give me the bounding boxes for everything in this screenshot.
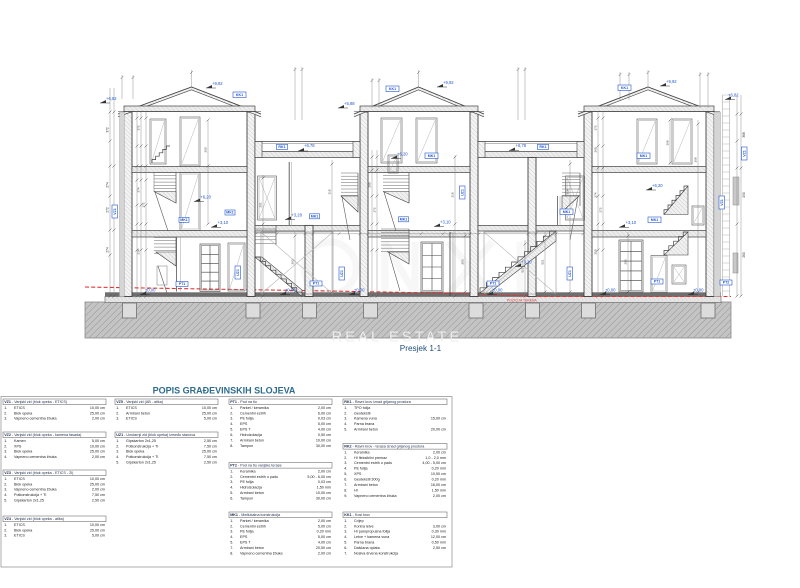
svg-text:5.: 5. <box>344 472 347 476</box>
svg-text:20,50 cm: 20,50 cm <box>316 546 331 550</box>
svg-text:4,00 cm: 4,00 cm <box>318 428 331 432</box>
svg-text:UZ1 - Unutarnji zid (blok opek: UZ1 - Unutarnji zid (blok opeka) između … <box>116 433 196 437</box>
svg-text:+6,78: +6,78 <box>304 143 315 148</box>
svg-text:6.: 6. <box>230 433 233 437</box>
svg-text:1,50 mm: 1,50 mm <box>317 486 331 490</box>
svg-text:Gipskarton 2x1,25: Gipskarton 2x1,25 <box>126 439 156 443</box>
svg-text:±0,00: ±0,00 <box>145 288 156 293</box>
svg-text:Blok opeka: Blok opeka <box>14 450 33 454</box>
svg-text:MK1 - Međukatna konstrukcija: MK1 - Međukatna konstrukcija <box>230 513 281 517</box>
svg-text:+3,10: +3,10 <box>440 219 451 224</box>
svg-text:2.: 2. <box>116 444 119 448</box>
svg-text:2,00 cm: 2,00 cm <box>92 417 105 421</box>
svg-text:ETICS: ETICS <box>126 406 137 410</box>
svg-text:Potkonstrukcija + TI: Potkonstrukcija + TI <box>126 455 158 459</box>
svg-text:Vapneno cementna žbuka: Vapneno cementna žbuka <box>354 494 398 498</box>
svg-text:4.: 4. <box>344 422 347 426</box>
svg-text:+9,92: +9,92 <box>666 79 677 84</box>
svg-text:Vapneno cementna žbuka: Vapneno cementna žbuka <box>240 552 284 556</box>
svg-text:3.: 3. <box>230 417 233 421</box>
svg-text:UZ1: UZ1 <box>461 189 465 196</box>
svg-text:VZ1: VZ1 <box>720 199 724 206</box>
svg-text:Daščana oplata: Daščana oplata <box>354 546 381 550</box>
svg-text:2.: 2. <box>116 411 119 415</box>
svg-text:Cementni estrih: Cementni estrih <box>240 524 266 528</box>
svg-text:290: 290 <box>368 182 372 187</box>
svg-text:EPS T: EPS T <box>240 428 251 432</box>
svg-text:MK1: MK1 <box>400 218 408 222</box>
svg-text:261: 261 <box>259 202 263 207</box>
svg-text:2,50 cm: 2,50 cm <box>204 439 217 443</box>
svg-text:Armirani beton: Armirani beton <box>354 483 378 487</box>
svg-text:10,00 cm: 10,00 cm <box>90 523 105 527</box>
svg-text:274: 274 <box>594 192 598 197</box>
svg-text:2.: 2. <box>4 444 7 448</box>
svg-text:4,00 cm: 4,00 cm <box>318 541 331 545</box>
svg-text:4.: 4. <box>116 455 119 459</box>
svg-text:318: 318 <box>328 189 332 194</box>
svg-text:±0,00: ±0,00 <box>605 288 616 293</box>
svg-text:3.: 3. <box>4 534 7 538</box>
svg-text:372: 372 <box>594 125 598 130</box>
svg-text:368: 368 <box>666 140 670 145</box>
svg-text:Geotekstil 300g: Geotekstil 300g <box>354 478 380 482</box>
svg-text:Parna brana: Parna brana <box>354 541 375 545</box>
svg-text:KK1: KK1 <box>236 93 243 97</box>
svg-text:263: 263 <box>461 259 465 264</box>
svg-text:EPS: EPS <box>240 422 248 426</box>
svg-text:4.: 4. <box>230 535 233 539</box>
svg-text:260: 260 <box>204 147 208 152</box>
svg-text:318: 318 <box>451 192 455 197</box>
svg-text:+6,20: +6,20 <box>652 183 663 188</box>
svg-text:Hidroizolacija: Hidroizolacija <box>240 433 263 437</box>
svg-text:5,00 cm: 5,00 cm <box>318 535 331 539</box>
svg-text:+9,92: +9,92 <box>212 81 223 86</box>
svg-text:2.: 2. <box>344 524 347 528</box>
svg-text:25,00 cm: 25,00 cm <box>90 482 105 486</box>
svg-text:0,03 cm: 0,03 cm <box>318 417 331 421</box>
svg-text:5,00 cm: 5,00 cm <box>92 439 105 443</box>
svg-text:+6,20: +6,20 <box>200 195 211 200</box>
svg-text:MK1: MK1 <box>226 211 234 215</box>
svg-text:368: 368 <box>742 132 746 138</box>
svg-text:4.: 4. <box>230 422 233 426</box>
svg-text:6.: 6. <box>230 497 233 501</box>
svg-text:RK1 - Ravni krov iznad grijano: RK1 - Ravni krov iznad grijanog prostora <box>344 400 412 404</box>
svg-text:1.: 1. <box>116 406 119 410</box>
svg-text:4.: 4. <box>230 486 233 490</box>
svg-text:1.: 1. <box>344 406 347 410</box>
svg-text:263: 263 <box>624 259 628 264</box>
svg-text:3.: 3. <box>230 480 233 484</box>
svg-text:ETICS: ETICS <box>14 406 25 410</box>
svg-text:Kamen: Kamen <box>14 439 26 443</box>
svg-text:Kamena vuna: Kamena vuna <box>354 417 378 421</box>
svg-text:0,50 mm: 0,50 mm <box>432 541 446 545</box>
svg-text:5.: 5. <box>230 428 233 432</box>
svg-text:0,20 mm: 0,20 mm <box>317 530 331 534</box>
svg-text:30,00 cm: 30,00 cm <box>316 444 331 448</box>
svg-text:TPO folija: TPO folija <box>354 406 371 410</box>
svg-text:7.: 7. <box>230 439 233 443</box>
svg-text:15,00 cm: 15,00 cm <box>431 417 446 421</box>
svg-text:+3,10: +3,10 <box>521 259 532 264</box>
svg-text:PE folija: PE folija <box>240 480 254 484</box>
svg-text:KK1: KK1 <box>389 87 396 91</box>
svg-text:Keramika: Keramika <box>354 450 371 454</box>
svg-text:25,00 cm: 25,00 cm <box>90 528 105 532</box>
svg-text:372: 372 <box>106 127 110 133</box>
svg-text:10,00 cm: 10,00 cm <box>90 444 105 448</box>
svg-text:2,00 cm: 2,00 cm <box>92 488 105 492</box>
svg-text:VZ1: VZ1 <box>743 150 747 157</box>
svg-text:25,00 cm: 25,00 cm <box>90 411 105 415</box>
svg-text:10,00 cm: 10,00 cm <box>202 406 217 410</box>
svg-text:2,00 cm: 2,00 cm <box>318 519 331 523</box>
svg-text:9.: 9. <box>344 494 347 498</box>
svg-text:272: 272 <box>106 207 110 213</box>
svg-text:MK1: MK1 <box>180 218 188 222</box>
svg-text:HI: HI <box>354 488 358 492</box>
svg-text:XPS: XPS <box>14 444 22 448</box>
svg-text:6,00 cm: 6,00 cm <box>318 411 331 415</box>
svg-text:4.: 4. <box>344 467 347 471</box>
svg-text:VZ1: VZ1 <box>113 208 117 215</box>
svg-text:3.: 3. <box>4 450 7 454</box>
svg-text:MK1: MK1 <box>563 210 571 214</box>
svg-text:HI paropropusna folija: HI paropropusna folija <box>354 530 391 534</box>
svg-text:Tampon: Tampon <box>240 497 253 501</box>
svg-text:7.: 7. <box>230 546 233 550</box>
svg-text:VZ4 - Vanjski zid (blok opeka: VZ4 - Vanjski zid (blok opeka - atika) <box>4 517 64 521</box>
svg-text:272: 272 <box>142 202 146 207</box>
svg-text:VZ5 - Vanjski zid (AB - atika): VZ5 - Vanjski zid (AB - atika) <box>116 400 163 404</box>
svg-text:8.: 8. <box>344 488 347 492</box>
svg-text:7.: 7. <box>344 483 347 487</box>
svg-text:2.: 2. <box>230 475 233 479</box>
svg-text:3.: 3. <box>344 461 347 465</box>
svg-text:12,00 cm: 12,00 cm <box>431 535 446 539</box>
svg-text:5,00 cm: 5,00 cm <box>318 524 331 528</box>
svg-text:5,00 - 6,00 cm: 5,00 - 6,00 cm <box>307 475 331 479</box>
svg-text:KK1: KK1 <box>621 86 628 90</box>
svg-text:5.: 5. <box>116 461 119 465</box>
svg-text:VZ1 - Vanjski zid (blok opeka: VZ1 - Vanjski zid (blok opeka - ETICS) <box>4 400 67 404</box>
svg-text:521: 521 <box>541 259 545 264</box>
svg-text:3.: 3. <box>230 530 233 534</box>
svg-text:250: 250 <box>594 249 598 254</box>
svg-text:10,00 cm: 10,00 cm <box>90 477 105 481</box>
svg-text:3.: 3. <box>344 417 347 421</box>
svg-text:2,00 cm: 2,00 cm <box>433 494 446 498</box>
svg-text:1,50 mm: 1,50 mm <box>432 488 446 492</box>
svg-text:+5,88: +5,88 <box>344 101 355 106</box>
svg-text:2.: 2. <box>344 456 347 460</box>
svg-text:1.: 1. <box>344 450 347 454</box>
svg-text:ETICS: ETICS <box>14 523 25 527</box>
svg-text:Parna brana: Parna brana <box>354 422 375 426</box>
svg-text:EPS: EPS <box>240 535 248 539</box>
svg-text:PE folija: PE folija <box>240 417 254 421</box>
svg-text:Cementni estrih u padu: Cementni estrih u padu <box>240 475 278 479</box>
svg-text:2.: 2. <box>344 411 347 415</box>
svg-text:2,00 cm: 2,00 cm <box>92 455 105 459</box>
svg-text:ETICS: ETICS <box>14 534 25 538</box>
svg-text:PT1: PT1 <box>490 282 497 286</box>
svg-text:+3,28: +3,28 <box>291 212 302 217</box>
svg-text:RK1: RK1 <box>278 145 285 149</box>
svg-text:KK1 - Kosi krov: KK1 - Kosi krov <box>344 513 370 517</box>
svg-text:263: 263 <box>291 259 295 264</box>
svg-text:5.: 5. <box>4 499 7 503</box>
svg-text:318: 318 <box>566 189 570 194</box>
svg-text:PT1: PT1 <box>313 282 320 286</box>
svg-text:16,00 cm: 16,00 cm <box>431 483 446 487</box>
svg-text:PT2: PT2 <box>723 281 730 285</box>
svg-text:8.: 8. <box>230 552 233 556</box>
svg-text:Cementni estrih u padu: Cementni estrih u padu <box>354 461 392 465</box>
svg-text:Armirani beton: Armirani beton <box>240 546 264 550</box>
svg-text:+6,82: +6,82 <box>106 96 117 101</box>
svg-text:2.: 2. <box>230 524 233 528</box>
svg-text:REAL ESTATE: REAL ESTATE <box>332 330 463 346</box>
svg-text:4.: 4. <box>344 535 347 539</box>
svg-text:Blok opeka: Blok opeka <box>14 528 33 532</box>
svg-text:ETICS: ETICS <box>126 417 137 421</box>
svg-text:10,50 cm: 10,50 cm <box>431 472 446 476</box>
svg-text:±0,00: ±0,00 <box>492 288 503 293</box>
svg-text:3,00 cm: 3,00 cm <box>433 524 446 528</box>
svg-text:+3,10: +3,10 <box>218 220 229 225</box>
svg-text:5.: 5. <box>344 541 347 545</box>
svg-text:POZICIJA TERENA: POZICIJA TERENA <box>507 299 537 303</box>
svg-text:Kontra letve: Kontra letve <box>354 524 374 528</box>
svg-text:4.: 4. <box>4 493 7 497</box>
svg-text:4,00 - 5,00 cm: 4,00 - 5,00 cm <box>422 461 446 465</box>
svg-text:UZ1: UZ1 <box>568 270 572 277</box>
svg-text:260: 260 <box>742 252 746 258</box>
svg-text:Vapneno cementna žbuka: Vapneno cementna žbuka <box>14 455 58 459</box>
svg-text:Tampon: Tampon <box>240 444 253 448</box>
svg-text:Blok opeka: Blok opeka <box>14 411 33 415</box>
svg-text:Keramika: Keramika <box>240 469 257 473</box>
svg-text:XPS: XPS <box>354 472 362 476</box>
svg-text:5,00 cm: 5,00 cm <box>92 534 105 538</box>
svg-text:521: 521 <box>521 267 525 272</box>
svg-text:Crijep: Crijep <box>354 519 364 523</box>
svg-text:0,03 cm: 0,03 cm <box>318 480 331 484</box>
svg-text:+6,20: +6,20 <box>397 152 408 157</box>
svg-text:2.: 2. <box>230 411 233 415</box>
svg-text:274: 274 <box>137 249 141 254</box>
svg-text:3.: 3. <box>116 450 119 454</box>
svg-text:20,00 cm: 20,00 cm <box>431 428 446 432</box>
svg-text:2,00 cm: 2,00 cm <box>318 552 331 556</box>
svg-text:PT1: PT1 <box>654 280 661 284</box>
svg-text:PT1: PT1 <box>179 282 186 286</box>
svg-text:Armirani beton: Armirani beton <box>240 439 264 443</box>
svg-text:0,50 cm: 0,50 cm <box>318 433 331 437</box>
svg-text:PT2 - Pod na tlu vanjske teras: PT2 - Pod na tlu vanjske terase <box>230 464 281 468</box>
svg-text:Gipskarton 2x1,25: Gipskarton 2x1,25 <box>126 461 156 465</box>
svg-text:Potkonstrukcija + TI: Potkonstrukcija + TI <box>126 444 158 448</box>
svg-text:2,50 cm: 2,50 cm <box>204 461 217 465</box>
svg-text:+6,78: +6,78 <box>516 143 527 148</box>
svg-text:7,50 cm: 7,50 cm <box>92 493 105 497</box>
svg-text:MK1: MK1 <box>428 154 436 158</box>
svg-text:2,00 cm: 2,00 cm <box>318 469 331 473</box>
svg-text:±0,00: ±0,00 <box>354 288 365 293</box>
svg-text:7,50 cm: 7,50 cm <box>204 455 217 459</box>
svg-text:RK1: RK1 <box>539 145 546 149</box>
svg-text:3.: 3. <box>116 417 119 421</box>
svg-text:1.: 1. <box>4 406 7 410</box>
svg-text:+6,82: +6,82 <box>728 93 739 98</box>
svg-text:1.: 1. <box>4 439 7 443</box>
svg-text:±0,00: ±0,00 <box>693 288 704 293</box>
svg-text:Vapneno cementna žbuka: Vapneno cementna žbuka <box>14 417 58 421</box>
svg-text:25,00 cm: 25,00 cm <box>90 450 105 454</box>
svg-text:5,00 cm: 5,00 cm <box>204 417 217 421</box>
svg-text:1.: 1. <box>4 477 7 481</box>
svg-text:1.: 1. <box>230 469 233 473</box>
svg-text:10,00 cm: 10,00 cm <box>316 491 331 495</box>
svg-text:Cementni estrih: Cementni estrih <box>240 411 266 415</box>
svg-text:Hidroizolacija: Hidroizolacija <box>240 486 263 490</box>
svg-text:8.: 8. <box>230 444 233 448</box>
svg-text:+3,10: +3,10 <box>626 220 637 225</box>
svg-text:1.: 1. <box>116 439 119 443</box>
svg-text:2.: 2. <box>4 528 7 532</box>
svg-text:PE folija: PE folija <box>240 530 254 534</box>
svg-text:PE folija: PE folija <box>354 467 368 471</box>
svg-text:UZ1: UZ1 <box>236 269 240 276</box>
svg-text:Nosiva drvena konstrukcija: Nosiva drvena konstrukcija <box>354 552 399 556</box>
svg-text:2.: 2. <box>4 482 7 486</box>
svg-text:Blok opeka: Blok opeka <box>14 482 33 486</box>
svg-text:5.: 5. <box>230 491 233 495</box>
svg-text:PT1 - Pod na tlu: PT1 - Pod na tlu <box>230 400 257 404</box>
svg-text:0,30 mm: 0,30 mm <box>432 530 446 534</box>
svg-text:3.: 3. <box>4 488 7 492</box>
svg-text:RK2 - Ravni krov - terasa izna: RK2 - Ravni krov - terasa iznad grijanog… <box>344 445 425 449</box>
svg-text:10,00 cm: 10,00 cm <box>90 406 105 410</box>
svg-text:2,50 cm: 2,50 cm <box>433 546 446 550</box>
svg-text:1.: 1. <box>230 519 233 523</box>
svg-text:Presjek 1-1: Presjek 1-1 <box>400 344 442 353</box>
svg-text:Armirani beton: Armirani beton <box>354 428 378 432</box>
svg-text:3.: 3. <box>344 530 347 534</box>
svg-text:Parket / keramika: Parket / keramika <box>240 406 270 410</box>
svg-text:EPS T: EPS T <box>240 541 251 545</box>
svg-text:2.: 2. <box>4 411 7 415</box>
svg-text:MK1: MK1 <box>311 215 319 219</box>
svg-text:MK1: MK1 <box>640 154 648 158</box>
svg-text:7,50 cm: 7,50 cm <box>204 444 217 448</box>
svg-text:30,00 cm: 30,00 cm <box>316 497 331 501</box>
svg-text:7.: 7. <box>344 552 347 556</box>
svg-text:368: 368 <box>694 157 698 162</box>
svg-text:10,00 cm: 10,00 cm <box>316 439 331 443</box>
svg-text:372: 372 <box>137 125 141 130</box>
svg-text:5.: 5. <box>230 541 233 545</box>
svg-text:MK1: MK1 <box>651 218 659 222</box>
svg-text:272: 272 <box>599 207 603 212</box>
svg-text:272: 272 <box>373 207 377 212</box>
svg-text:±0,00: ±0,00 <box>285 288 296 293</box>
svg-text:UZ1: UZ1 <box>340 270 344 277</box>
svg-text:Potkonstrukcija + TI: Potkonstrukcija + TI <box>14 493 46 497</box>
svg-text:1.: 1. <box>4 523 7 527</box>
svg-text:POPIS GRAĐEVINSKIH SLOJEVA: POPIS GRAĐEVINSKIH SLOJEVA <box>153 386 296 396</box>
svg-text:1.: 1. <box>344 519 347 523</box>
svg-text:2,00 cm: 2,00 cm <box>433 450 446 454</box>
svg-text:VZ2 - Vanjski zid (blok opeka: VZ2 - Vanjski zid (blok opeka - kamena f… <box>4 433 81 437</box>
svg-text:274: 274 <box>106 247 110 253</box>
svg-text:Parket / keramika: Parket / keramika <box>240 519 270 523</box>
svg-text:5,00 cm: 5,00 cm <box>318 422 331 426</box>
svg-text:6.: 6. <box>344 478 347 482</box>
svg-text:HI fleksibilni premaz: HI fleksibilni premaz <box>354 456 387 460</box>
svg-text:274: 274 <box>106 182 110 188</box>
svg-text:Gipskarton 2x1,25: Gipskarton 2x1,25 <box>14 499 44 503</box>
svg-text:Armirani beton: Armirani beton <box>240 491 264 495</box>
svg-text:3.: 3. <box>4 417 7 421</box>
svg-text:Blok opeka: Blok opeka <box>126 450 145 454</box>
svg-text:VZ3 - Vanjski zid (blok opeka: VZ3 - Vanjski zid (blok opeka - ETICS - … <box>4 471 73 475</box>
svg-text:25,00 cm: 25,00 cm <box>202 450 217 454</box>
svg-text:260: 260 <box>594 147 598 152</box>
svg-text:4.: 4. <box>4 455 7 459</box>
svg-text:0,20 mm: 0,20 mm <box>432 478 446 482</box>
svg-text:274: 274 <box>137 187 141 192</box>
svg-text:Geotekstil: Geotekstil <box>354 411 371 415</box>
svg-text:2,00 cm: 2,00 cm <box>318 406 331 410</box>
svg-text:1.: 1. <box>230 406 233 410</box>
svg-text:25,00 cm: 25,00 cm <box>202 411 217 415</box>
svg-text:Vapneno cementna žbuka: Vapneno cementna žbuka <box>14 488 58 492</box>
svg-text:6.: 6. <box>344 546 347 550</box>
svg-text:5.: 5. <box>344 428 347 432</box>
svg-text:2,50 cm: 2,50 cm <box>92 499 105 503</box>
svg-text:+9,92: +9,92 <box>443 80 454 85</box>
svg-text:0,20 mm: 0,20 mm <box>432 467 446 471</box>
svg-text:Armirani beton: Armirani beton <box>126 411 150 415</box>
svg-text:ETICS: ETICS <box>14 477 25 481</box>
svg-text:1,0 - 2,0 mm: 1,0 - 2,0 mm <box>425 456 446 460</box>
svg-text:290: 290 <box>742 192 746 198</box>
svg-text:Letve + kamena vuna: Letve + kamena vuna <box>354 535 390 539</box>
